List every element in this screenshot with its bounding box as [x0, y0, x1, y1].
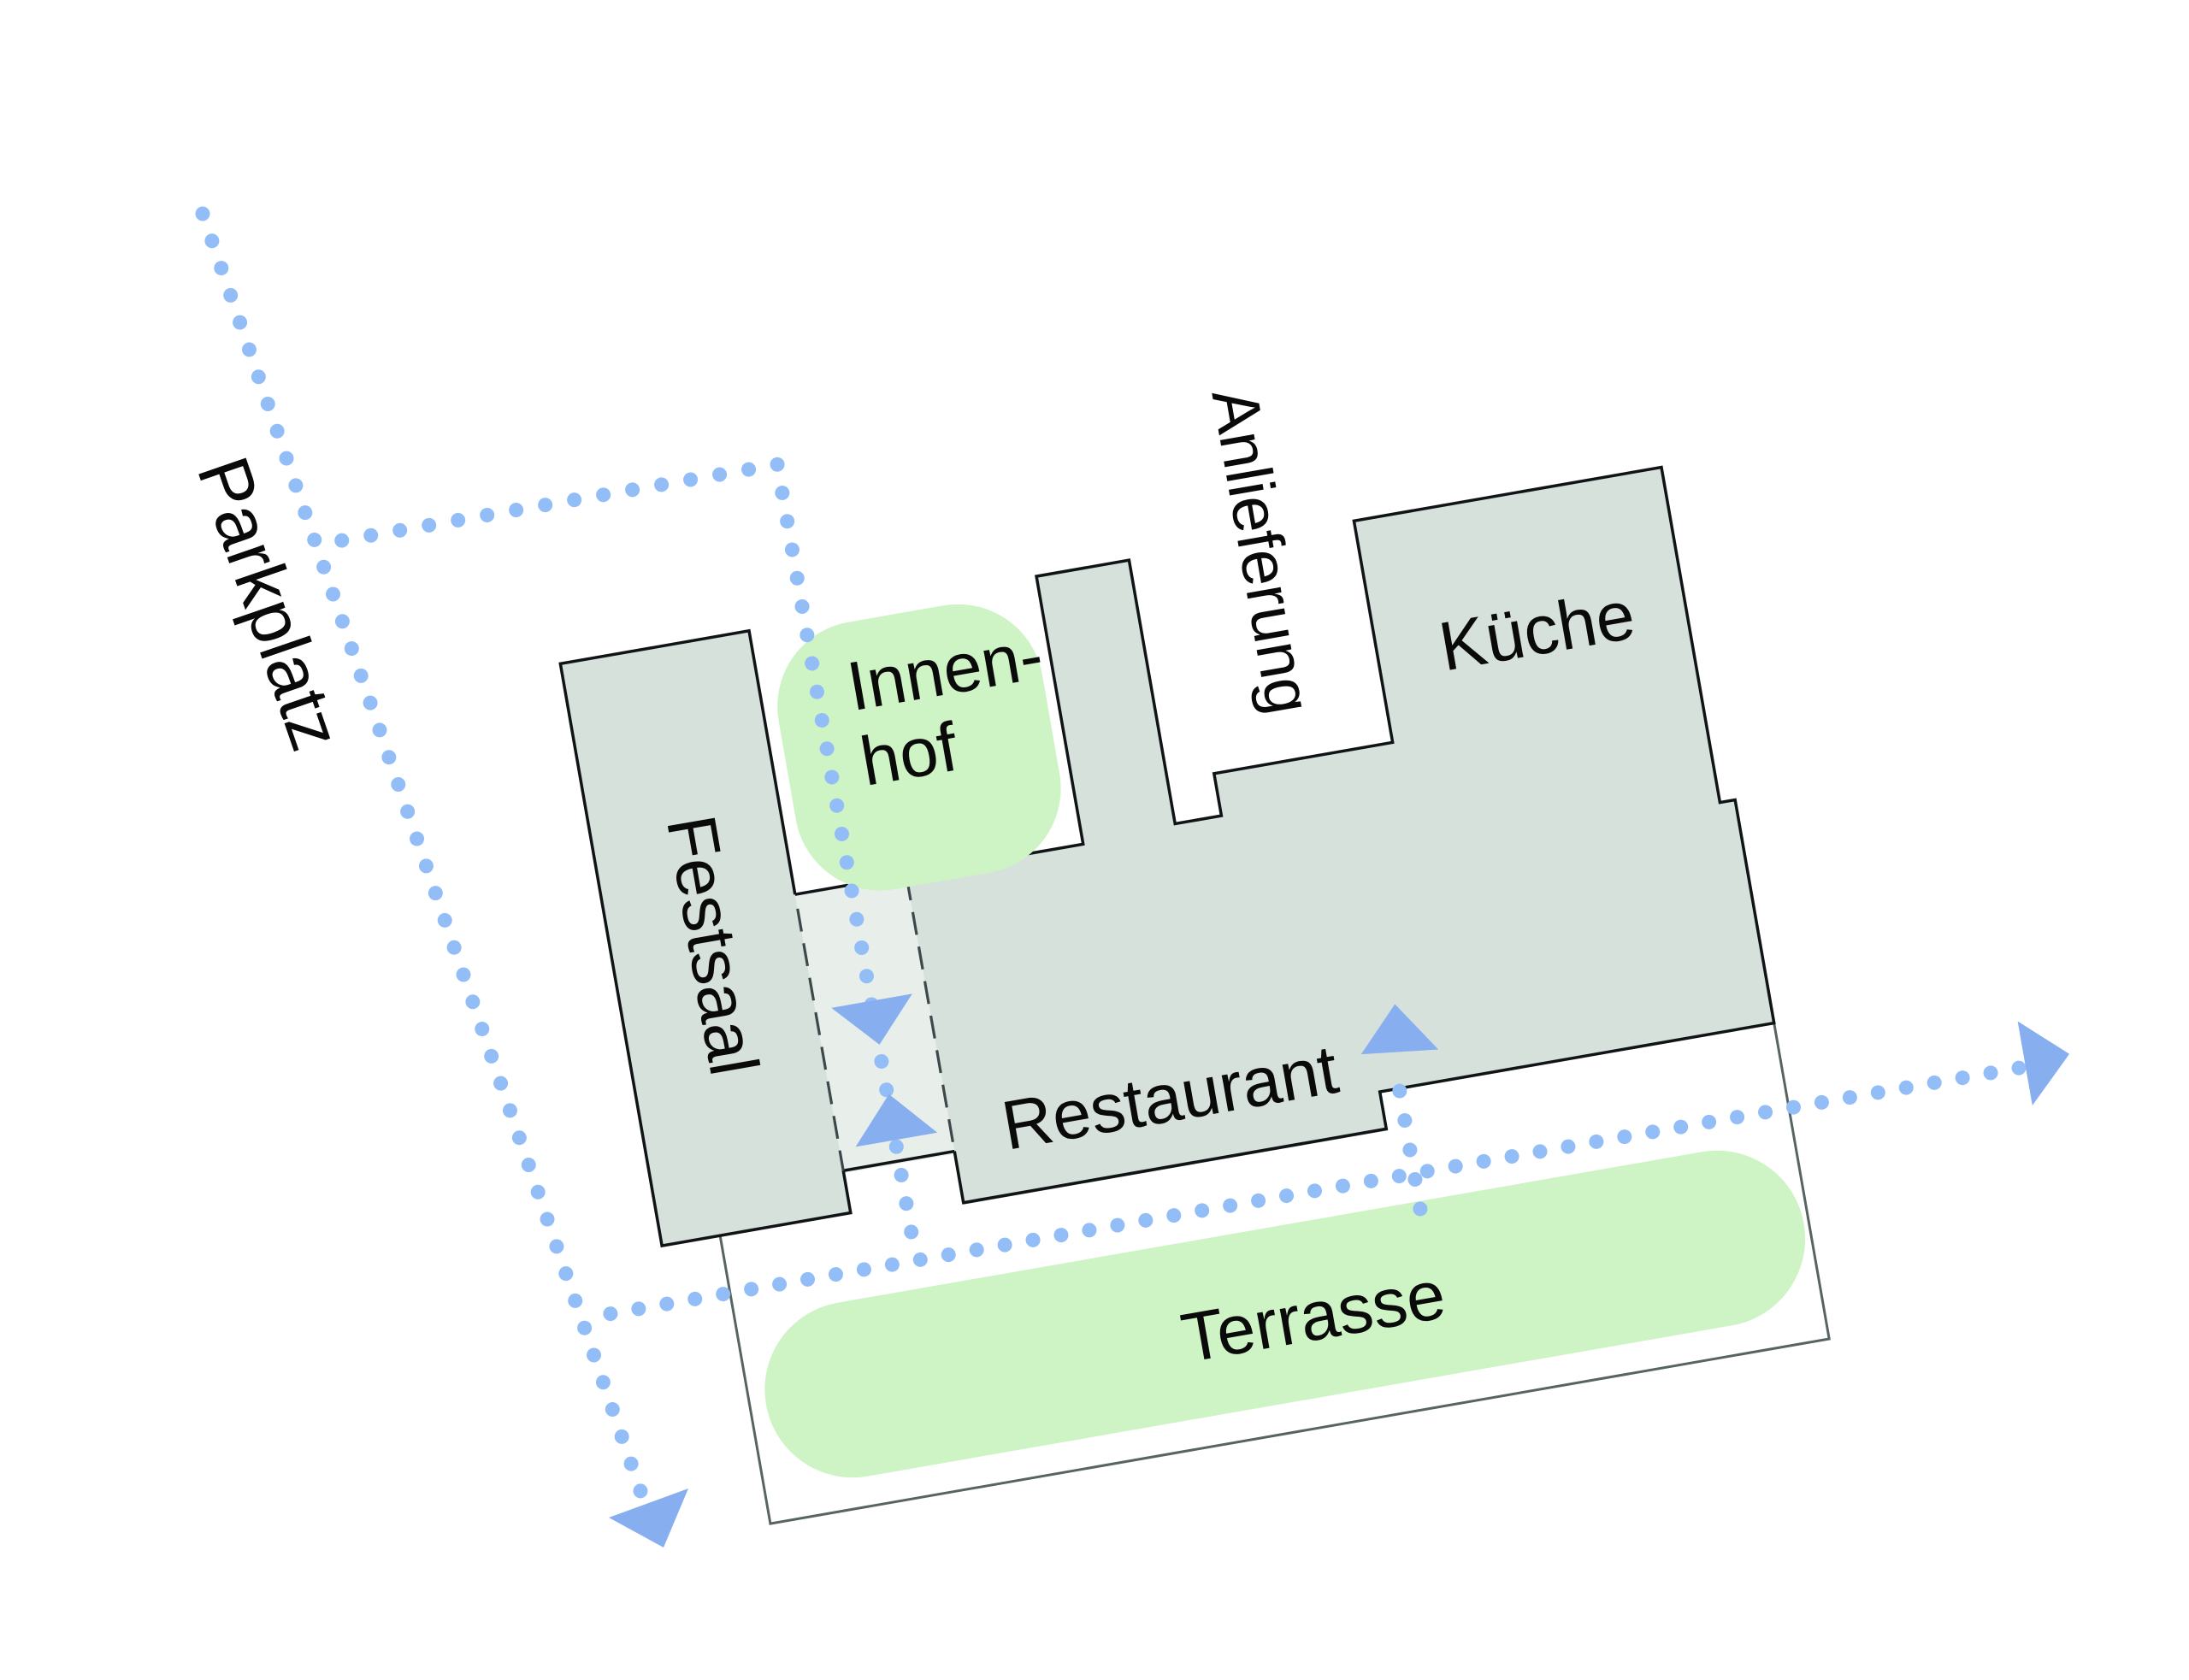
svg-text:hof: hof [855, 709, 964, 801]
